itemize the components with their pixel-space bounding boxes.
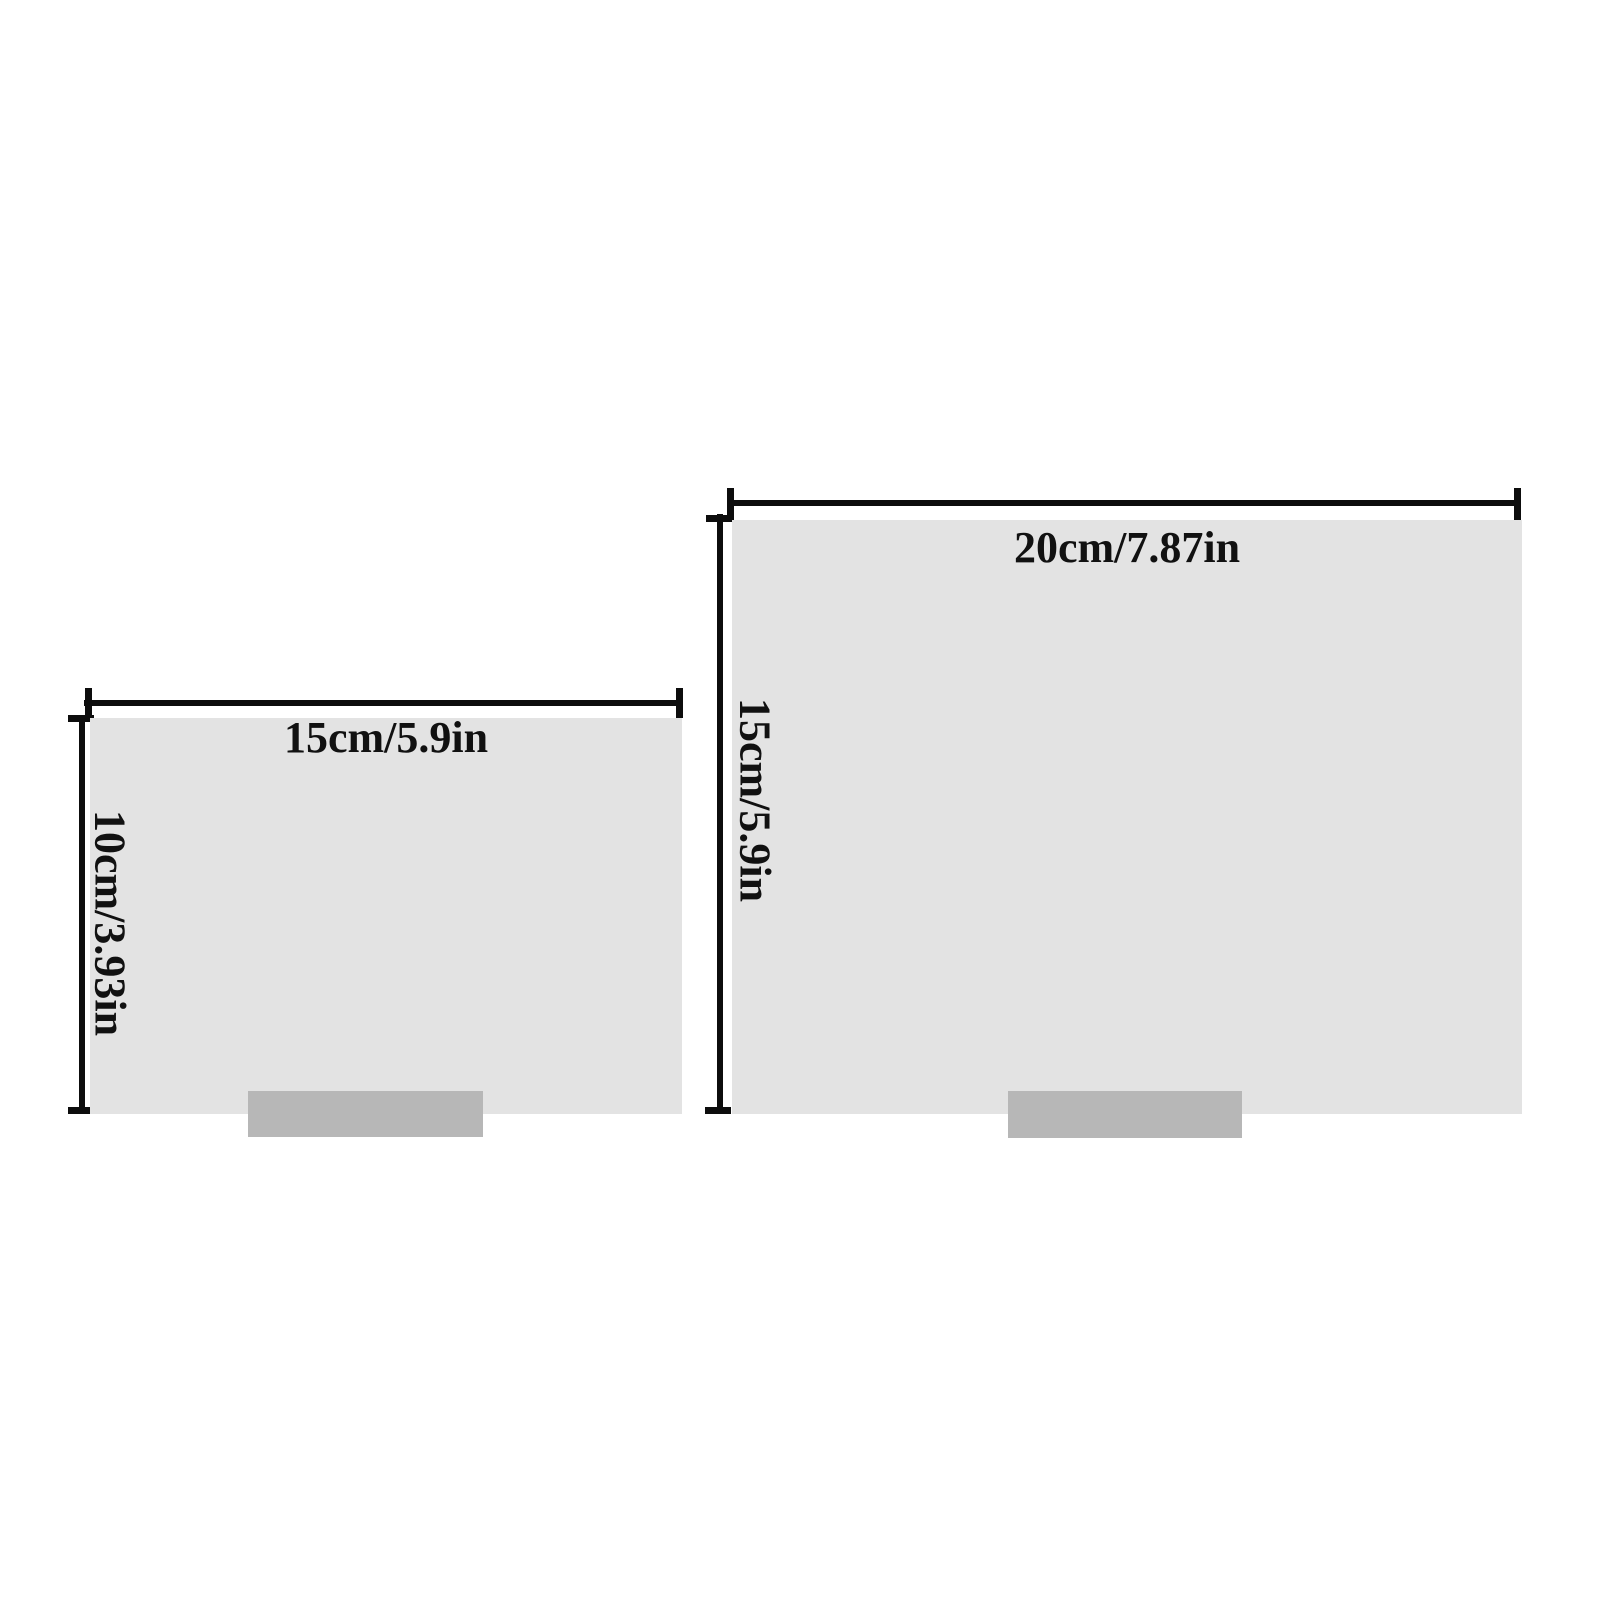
large-height-tick-bottom xyxy=(705,1107,731,1114)
product-size-diagram: 15cm/5.9in 10cm/3.93in 20cm/7.87in 15cm/… xyxy=(0,0,1600,1600)
large-panel xyxy=(732,520,1522,1114)
large-height-dimension-line xyxy=(717,514,723,1114)
large-stand-base xyxy=(1008,1091,1242,1138)
small-width-dimension-line xyxy=(84,700,683,706)
small-stand-base xyxy=(248,1091,483,1137)
large-height-tick-top xyxy=(706,515,732,522)
large-width-label: 20cm/7.87in xyxy=(732,524,1522,572)
large-height-label: 15cm/5.9in xyxy=(730,698,778,902)
small-height-label: 10cm/3.93in xyxy=(85,810,133,1036)
small-width-label: 15cm/5.9in xyxy=(90,714,682,762)
large-width-dimension-line xyxy=(727,500,1520,506)
large-width-tick-right xyxy=(1514,488,1521,520)
small-panel xyxy=(90,718,682,1114)
